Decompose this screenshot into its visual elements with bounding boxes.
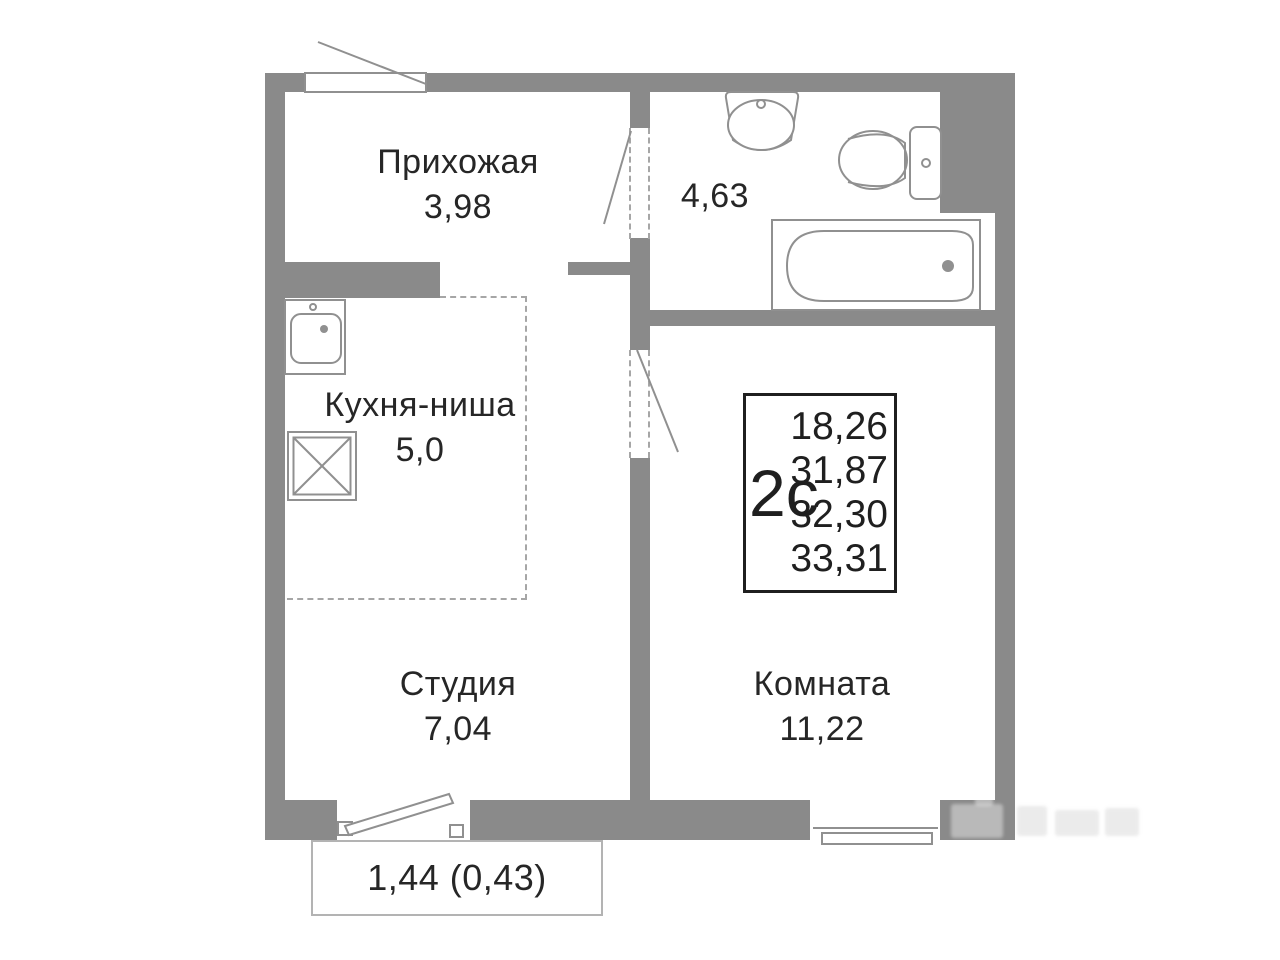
room-area: 7,04	[308, 707, 608, 752]
room-area: 5,0	[270, 428, 570, 473]
area-value: 18,26	[790, 405, 888, 449]
room-label-hallway: Прихожая 3,98	[308, 140, 608, 230]
room-label-studio: Студия 7,04	[308, 662, 608, 752]
wall-center-middle	[630, 238, 650, 350]
bathroom-door-dashed-right	[648, 128, 650, 239]
bathroom-door-swing	[604, 131, 631, 224]
wall-bottom-middle	[470, 800, 810, 840]
wall-center-lower	[630, 458, 650, 800]
wall-top-right-block	[940, 73, 1015, 213]
room-area: 11,22	[672, 707, 972, 752]
kitchen-niche-boundary-top	[440, 296, 527, 298]
wall-bathroom-bottom	[643, 310, 995, 326]
balcony-outline: 1,44 (0,43)	[311, 840, 603, 916]
area-value: 31,87	[790, 449, 888, 493]
wall-stub-corridor	[568, 262, 630, 275]
room-area: 3,98	[308, 185, 608, 230]
area-value: 32,30	[790, 493, 888, 537]
room-name: Кухня-ниша	[270, 383, 570, 428]
balcony-door-opening	[337, 800, 470, 840]
bathroom-door-dashed-left	[629, 128, 631, 239]
floor-plan-canvas: Прихожая 3,98 4,63 Кухня-ниша 5,0 Студия…	[0, 0, 1280, 960]
room-name: Студия	[308, 662, 608, 707]
entrance-door-opening	[304, 72, 427, 93]
area-value: 33,31	[790, 537, 888, 581]
living-room-window-opening	[810, 800, 940, 833]
wall-hallway-bottom	[285, 262, 440, 298]
kitchen-sink-icon	[285, 300, 345, 374]
wall-bottom-left	[265, 800, 337, 840]
wall-right	[995, 213, 1015, 840]
watermark	[945, 790, 1155, 852]
room-label-living-room: Комната 11,22	[672, 662, 972, 752]
room-name: Прихожая	[308, 140, 608, 185]
toilet-icon	[839, 127, 941, 199]
kitchen-niche-boundary-bottom	[287, 598, 527, 600]
room-label-bathroom: 4,63	[662, 174, 768, 219]
apartment-info-box: 2с 18,26 31,87 32,30 33,31	[743, 393, 897, 593]
room-name: Комната	[672, 662, 972, 707]
room-area: 4,63	[662, 174, 768, 219]
wall-center-upper	[630, 92, 650, 128]
apartment-area-values: 18,26 31,87 32,30 33,31	[790, 405, 888, 581]
balcony-area-label: 1,44 (0,43)	[367, 857, 547, 899]
room-door-dashed-left	[629, 350, 631, 458]
room-door-swing	[637, 350, 678, 452]
room-door-dashed-right	[648, 350, 650, 458]
bathtub-icon	[772, 220, 980, 310]
bath-sink-icon	[726, 92, 798, 150]
wall-top-middle	[427, 73, 940, 92]
room-label-kitchen: Кухня-ниша 5,0	[270, 383, 570, 473]
